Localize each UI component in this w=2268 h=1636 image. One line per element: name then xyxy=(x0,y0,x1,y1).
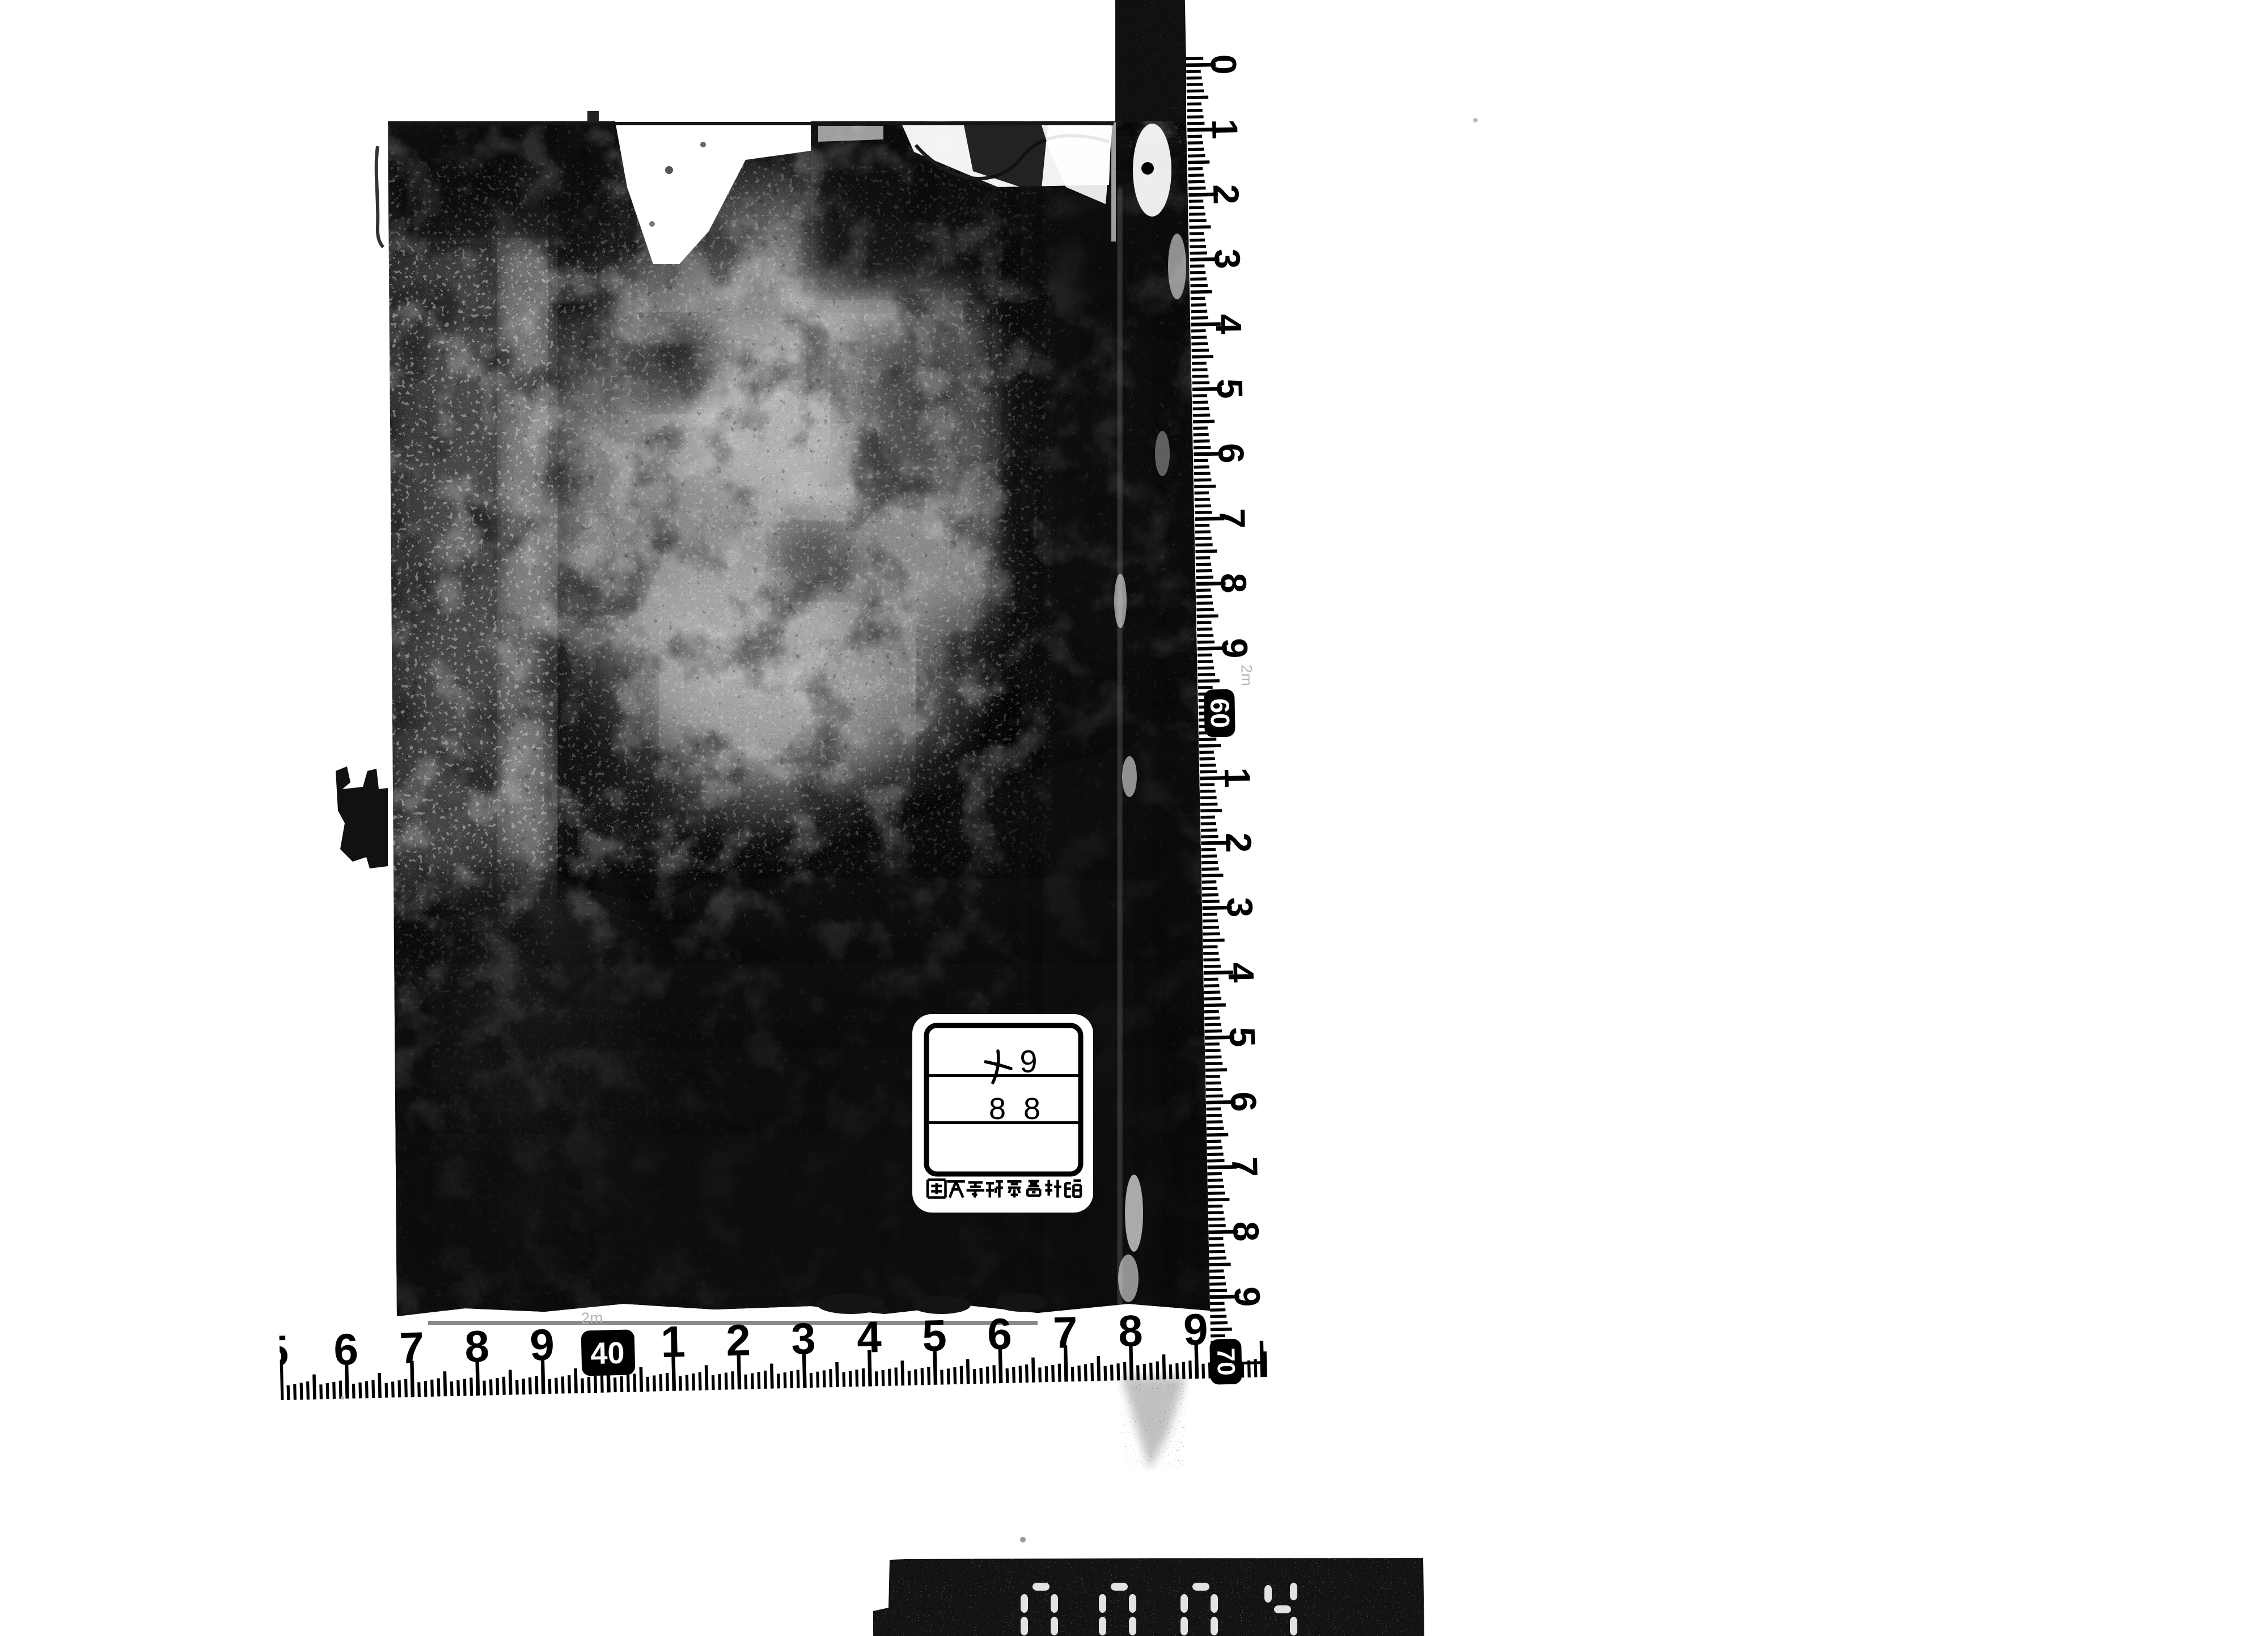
svg-text:8: 8 xyxy=(989,1092,1006,1126)
svg-text:4: 4 xyxy=(1208,313,1249,334)
svg-text:7: 7 xyxy=(399,1323,424,1373)
svg-text:5: 5 xyxy=(1222,1027,1263,1048)
svg-text:4: 4 xyxy=(856,1312,882,1362)
svg-text:7: 7 xyxy=(1212,508,1253,529)
svg-text:9: 9 xyxy=(1214,638,1255,659)
svg-text:7: 7 xyxy=(1224,1156,1266,1177)
svg-text:3: 3 xyxy=(790,1313,816,1364)
svg-text:3: 3 xyxy=(1207,248,1248,269)
svg-text:6: 6 xyxy=(1211,443,1252,464)
svg-text:9: 9 xyxy=(1183,1304,1208,1354)
svg-text:2: 2 xyxy=(725,1315,751,1365)
svg-text:4: 4 xyxy=(1220,962,1262,983)
svg-text:3: 3 xyxy=(1219,897,1260,918)
svg-text:1: 1 xyxy=(660,1316,686,1367)
svg-text:8: 8 xyxy=(1213,573,1254,594)
svg-text:2: 2 xyxy=(1205,184,1247,205)
svg-text:8: 8 xyxy=(464,1321,489,1371)
svg-text:2m: 2m xyxy=(1238,664,1255,686)
svg-text:40: 40 xyxy=(590,1336,625,1371)
svg-text:8: 8 xyxy=(1225,1221,1267,1242)
svg-text:7: 7 xyxy=(1052,1307,1078,1358)
svg-text:6: 6 xyxy=(333,1324,358,1375)
svg-text:9: 9 xyxy=(529,1320,555,1370)
svg-text:60: 60 xyxy=(1205,698,1235,728)
svg-text:9: 9 xyxy=(1226,1286,1268,1307)
svg-text:8: 8 xyxy=(1118,1306,1143,1356)
svg-text:1: 1 xyxy=(1217,767,1258,788)
svg-text:8: 8 xyxy=(1023,1092,1040,1126)
svg-text:9: 9 xyxy=(1019,1044,1037,1079)
svg-text:2: 2 xyxy=(1218,832,1259,853)
svg-text:0: 0 xyxy=(1203,54,1245,75)
svg-text:5: 5 xyxy=(921,1310,947,1360)
svg-text:6: 6 xyxy=(987,1309,1012,1359)
svg-text:5: 5 xyxy=(1209,378,1251,399)
svg-text:70: 70 xyxy=(1212,1347,1240,1376)
svg-text:2m: 2m xyxy=(581,1309,603,1327)
svg-text:6: 6 xyxy=(1223,1091,1264,1112)
svg-text:1: 1 xyxy=(1204,118,1246,139)
